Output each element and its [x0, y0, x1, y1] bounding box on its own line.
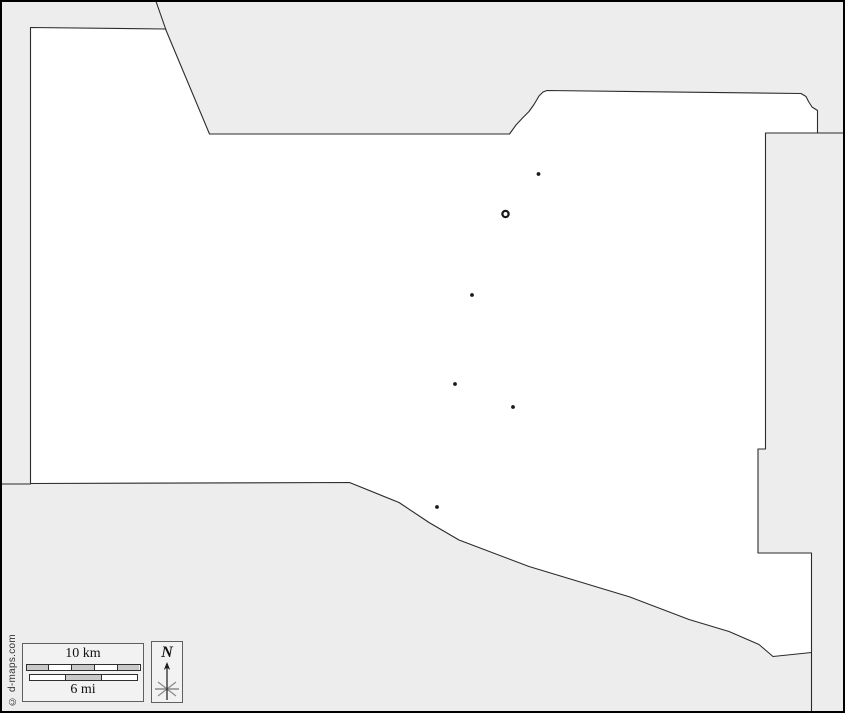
scale-mi-segment [65, 675, 101, 680]
scale-km-segment [94, 665, 117, 670]
scale-km-segment [71, 665, 94, 670]
town-marker-dot [537, 172, 541, 176]
map-stage [0, 0, 845, 713]
north-indicator-box: N [151, 641, 183, 703]
north-arrow-icon [152, 661, 182, 702]
town-marker-dot [435, 505, 439, 509]
scale-mi-segment [30, 675, 65, 680]
dmaps-copyright-credit: © d-maps.com [7, 634, 18, 706]
town-marker-dot [470, 293, 474, 297]
scale-bar-box: 10 km 6 mi [22, 643, 144, 702]
blank-outline-map [0, 0, 845, 713]
scale-km-segment [27, 665, 49, 670]
scale-km-label: 10 km [23, 646, 143, 662]
scale-mi-label: 6 mi [23, 682, 143, 698]
north-label: N [152, 644, 182, 661]
scale-km-segment [48, 665, 71, 670]
scale-km-segment [117, 665, 140, 670]
town-marker-dot [511, 405, 515, 409]
town-marker-dot [453, 382, 457, 386]
scale-mi-bar [29, 674, 138, 681]
scale-km-bar [26, 664, 141, 671]
capital-marker-ring [502, 211, 508, 217]
scale-mi-segment [101, 675, 137, 680]
